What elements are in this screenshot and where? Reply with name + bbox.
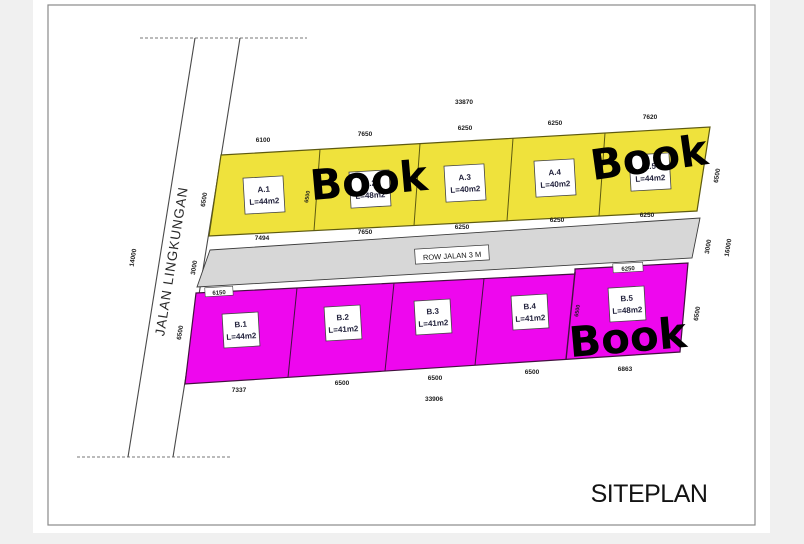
dim-label: 7337	[232, 387, 247, 394]
plot-id: A.4	[548, 168, 561, 178]
plot-id: B.1	[234, 320, 247, 330]
plot-area: L=44m2	[226, 331, 257, 342]
label-box	[511, 294, 549, 330]
plot-label-b2: B.2 L=41m2	[324, 305, 362, 341]
dim-label: 6500	[525, 369, 540, 376]
plot-id: B.4	[523, 302, 536, 312]
plot-label-b1: B.1 L=44m2	[222, 312, 260, 348]
dim-label: 6250	[640, 212, 655, 219]
dim-label: 6500	[428, 375, 443, 382]
plot-label-a1: A.1 L=44m2	[243, 176, 285, 214]
label-box	[414, 299, 452, 335]
plot-id: B.5	[620, 294, 633, 304]
dim-label: 6500	[335, 380, 350, 387]
plot-area: L=41m2	[328, 324, 359, 335]
watermark-book: Book	[567, 308, 690, 367]
plot-id: A.3	[458, 173, 471, 183]
plot-label-b4: B.4 L=41m2	[511, 294, 549, 330]
label-box	[324, 305, 362, 341]
dim-total-label: 33870	[455, 99, 473, 106]
dim-label: 7494	[255, 235, 270, 242]
dim-label: 6863	[618, 366, 633, 373]
plot-area: L=41m2	[515, 313, 546, 324]
plot-area: L=44m2	[249, 196, 280, 207]
dim-label: 6150	[212, 290, 226, 297]
dim-total-label: 33906	[425, 396, 443, 403]
dim-label: 6250	[455, 224, 470, 231]
label-box	[444, 164, 486, 202]
plot-label-b3: B.3 L=41m2	[414, 299, 452, 335]
dim-label: 6100	[256, 137, 271, 144]
plot-label-a4: A.4 L=40m2	[534, 159, 576, 197]
dim-label: 7650	[358, 131, 373, 138]
siteplan-canvas: JALAN LINGKUNGAN 14000 ROW JALAN 3 M A.1…	[0, 0, 804, 544]
plot-id: A.1	[257, 185, 270, 195]
dim-box-b1-top: 6150	[205, 286, 234, 297]
siteplan-title: SITEPLAN	[591, 480, 708, 508]
plot-area: L=40m2	[540, 179, 571, 190]
dim-label: 7650	[358, 229, 373, 236]
plot-area: L=41m2	[418, 318, 449, 329]
dim-label: 6250	[550, 217, 565, 224]
label-box	[534, 159, 576, 197]
dim-label: 6250	[458, 125, 473, 132]
plot-id: B.3	[426, 307, 439, 317]
plot-id: B.2	[336, 313, 349, 323]
siteplan-image: JALAN LINGKUNGAN 14000 ROW JALAN 3 M A.1…	[0, 0, 804, 544]
label-box	[243, 176, 285, 214]
plot-label-a3: A.3 L=40m2	[444, 164, 486, 202]
dim-label: 6250	[621, 266, 635, 273]
dim-label: 6250	[548, 120, 563, 127]
plot-area: L=40m2	[450, 184, 481, 195]
dim-box-b5-top: 6250	[613, 262, 643, 273]
label-box	[222, 312, 260, 348]
dim-label: 7620	[643, 114, 658, 121]
watermark-book: Book	[308, 151, 431, 210]
